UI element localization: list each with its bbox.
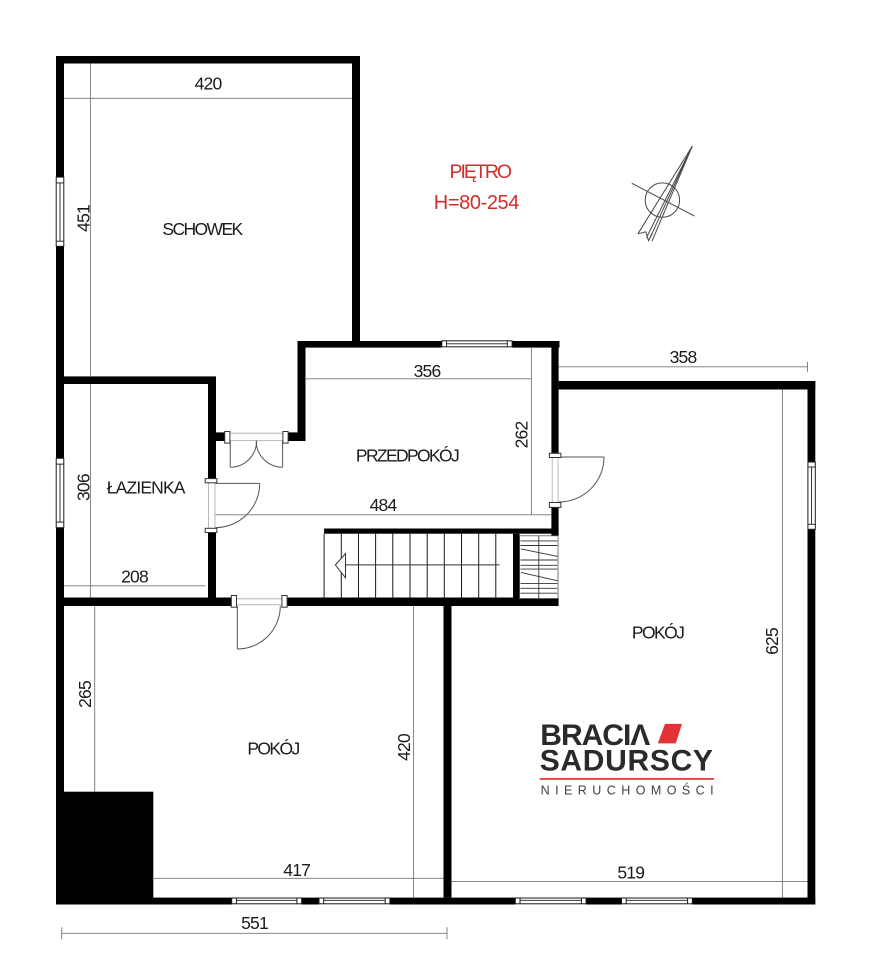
svg-text:358: 358 — [670, 347, 697, 367]
svg-text:420: 420 — [195, 73, 223, 93]
svg-text:356: 356 — [414, 361, 441, 381]
svg-text:POKÓJ: POKÓJ — [632, 622, 684, 643]
svg-text:420: 420 — [394, 733, 414, 761]
svg-text:625: 625 — [762, 628, 782, 655]
svg-text:265: 265 — [75, 681, 95, 708]
svg-text:417: 417 — [283, 860, 310, 880]
svg-text:SCHOWEK: SCHOWEK — [162, 219, 243, 239]
svg-text:PRZEDPOKÓJ: PRZEDPOKÓJ — [356, 445, 459, 466]
svg-text:ŁAZIENKA: ŁAZIENKA — [107, 478, 186, 498]
svg-text:306: 306 — [74, 474, 94, 501]
svg-text:208: 208 — [121, 566, 148, 586]
svg-text:H=80-254: H=80-254 — [434, 192, 519, 214]
svg-text:262: 262 — [512, 422, 532, 449]
svg-text:551: 551 — [241, 913, 268, 933]
svg-text:451: 451 — [74, 205, 94, 232]
svg-text:PIĘTRO: PIĘTRO — [450, 161, 512, 183]
svg-text:NIERUCHOMOŚCI: NIERUCHOMOŚCI — [541, 783, 720, 798]
svg-text:519: 519 — [617, 863, 644, 883]
svg-text:484: 484 — [370, 495, 398, 515]
svg-text:SADURSCY: SADURSCY — [540, 745, 714, 778]
svg-text:POKÓJ: POKÓJ — [247, 737, 299, 758]
